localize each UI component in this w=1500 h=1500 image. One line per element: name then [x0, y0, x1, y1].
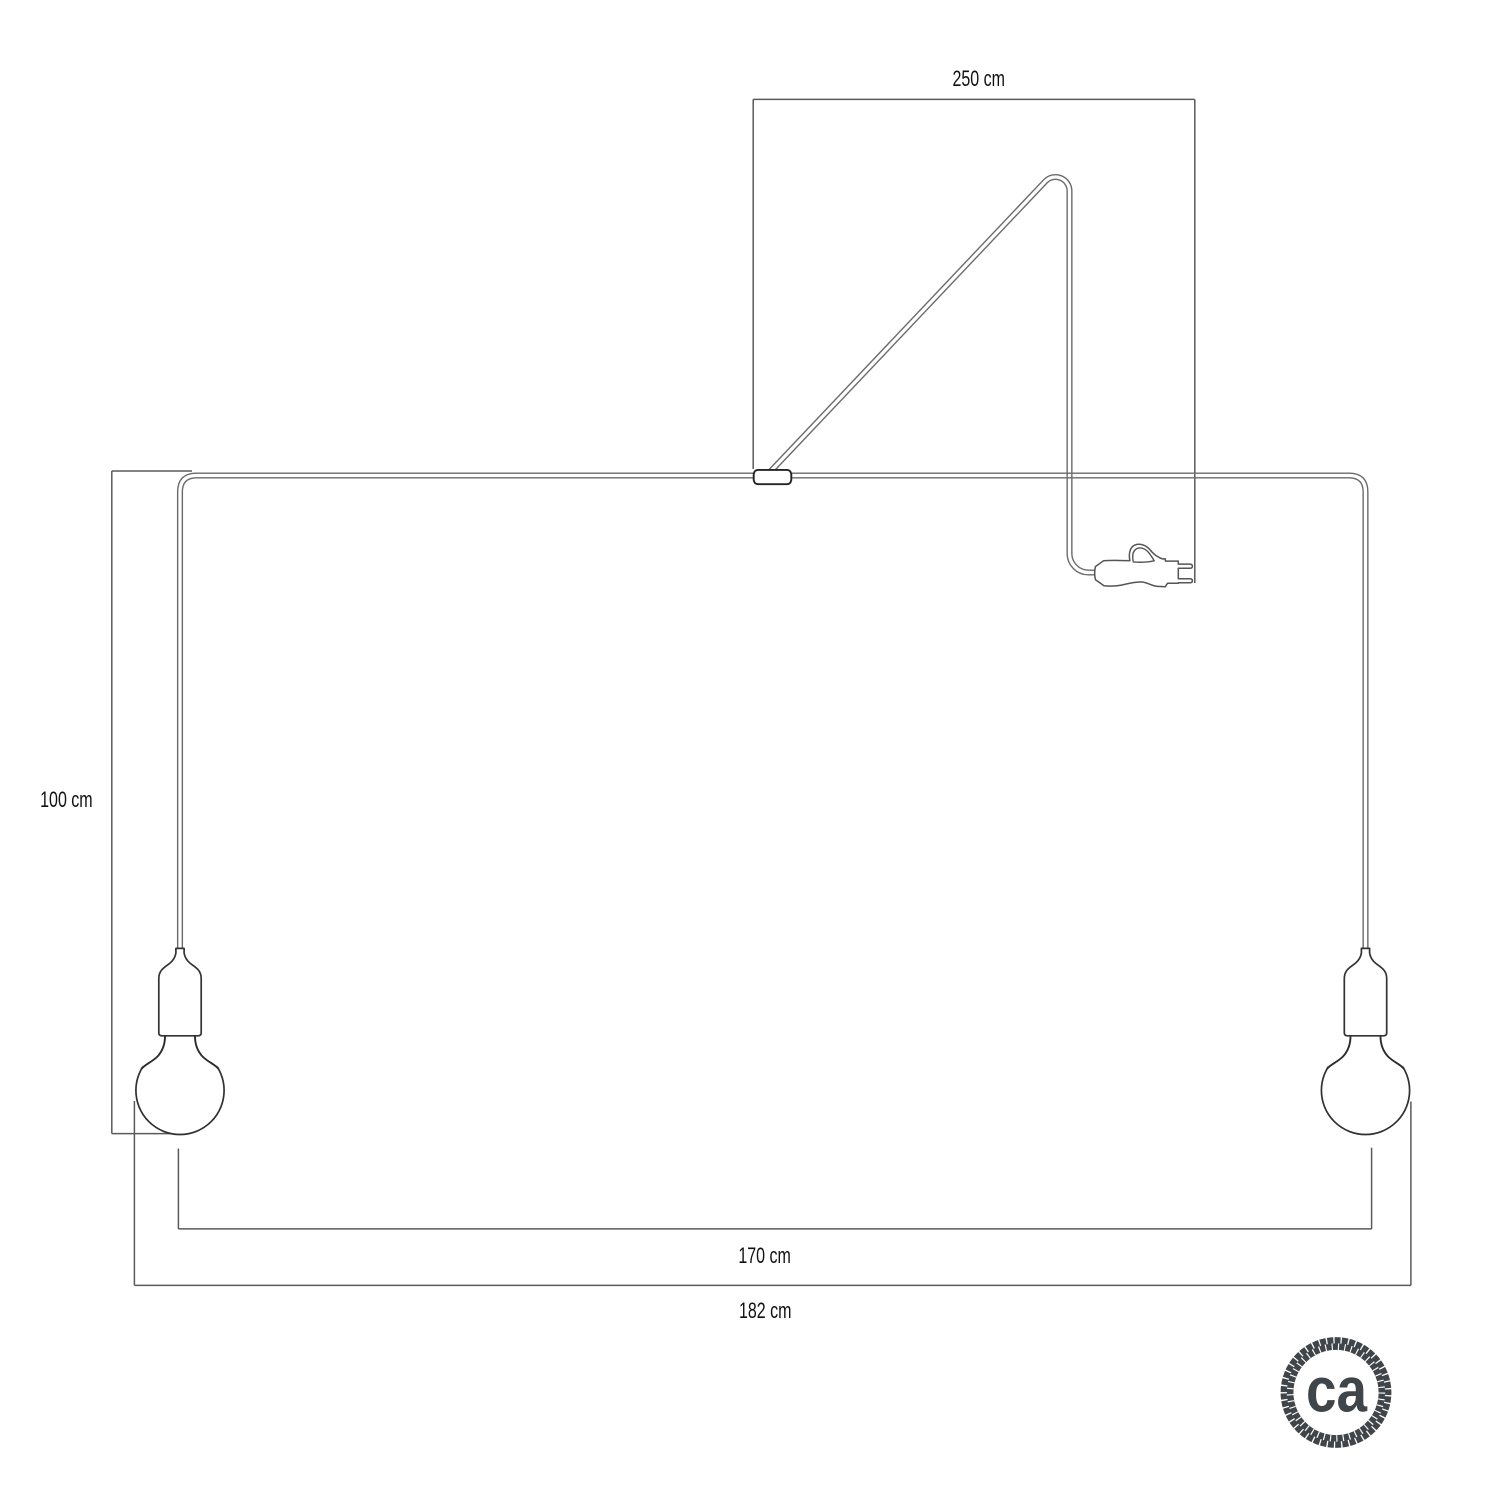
svg-text:100 cm: 100 cm	[40, 787, 93, 812]
svg-text:250 cm: 250 cm	[952, 66, 1005, 91]
svg-text:182 cm: 182 cm	[739, 1298, 792, 1323]
svg-text:170 cm: 170 cm	[738, 1243, 791, 1268]
svg-text:ca: ca	[1306, 1356, 1368, 1426]
